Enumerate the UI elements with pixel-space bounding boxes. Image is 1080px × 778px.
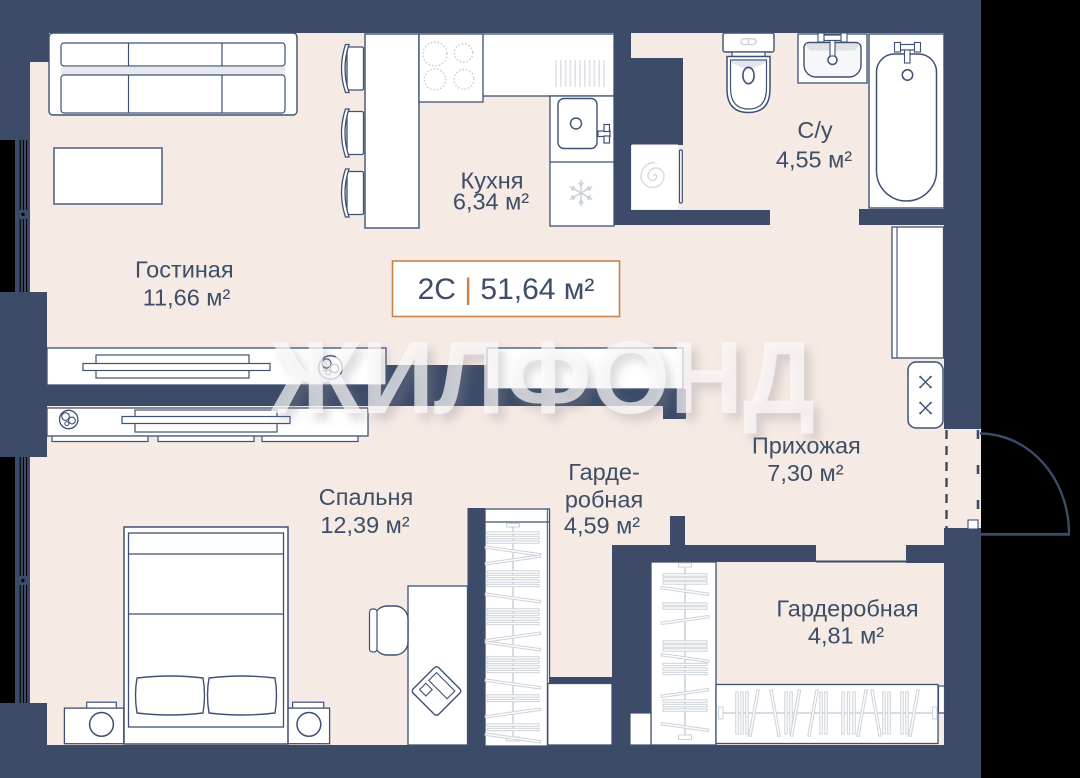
svg-text:ЖИЛФОНД: ЖИЛФОНД [269,320,815,435]
svg-text:11,66 м²: 11,66 м² [143,285,231,311]
svg-text:С/у: С/у [797,117,833,143]
svg-text:Прихожая: Прихожая [752,433,861,459]
svg-text:12,39 м²: 12,39 м² [320,512,409,538]
svg-text:Гостиная: Гостиная [135,257,234,283]
svg-text:2С | 51,64 м²: 2С | 51,64 м² [418,273,595,306]
svg-text:4,55 м²: 4,55 м² [776,147,852,173]
svg-text:Гардеробная: Гардеробная [776,596,918,622]
svg-text:7,30 м²: 7,30 м² [767,460,843,486]
svg-text:4,59 м²: 4,59 м² [564,513,640,539]
svg-text:Спальня: Спальня [319,484,413,510]
svg-text:Гарде-: Гарде- [568,459,640,485]
svg-text:робная: робная [565,487,643,513]
svg-text:4,81 м²: 4,81 м² [808,623,884,649]
svg-text:6,34 м²: 6,34 м² [453,189,529,215]
